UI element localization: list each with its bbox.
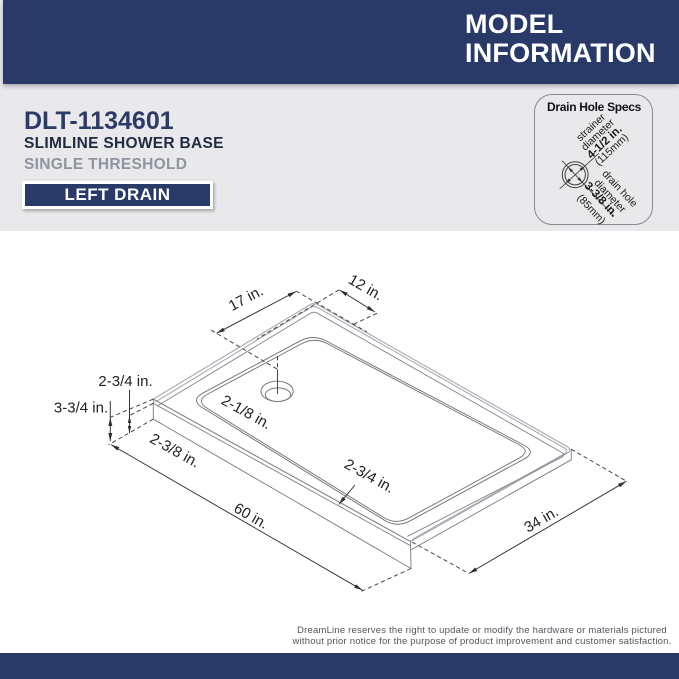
svg-text:2-3/4 in.: 2-3/4 in. — [341, 456, 397, 497]
svg-text:12 in.: 12 in. — [345, 271, 385, 304]
svg-text:2-3/8 in.: 2-3/8 in. — [147, 430, 203, 471]
svg-text:60 in.: 60 in. — [231, 500, 271, 533]
svg-text:2-3/4 in.: 2-3/4 in. — [98, 373, 152, 390]
svg-text:3-3/4 in.: 3-3/4 in. — [54, 399, 108, 416]
